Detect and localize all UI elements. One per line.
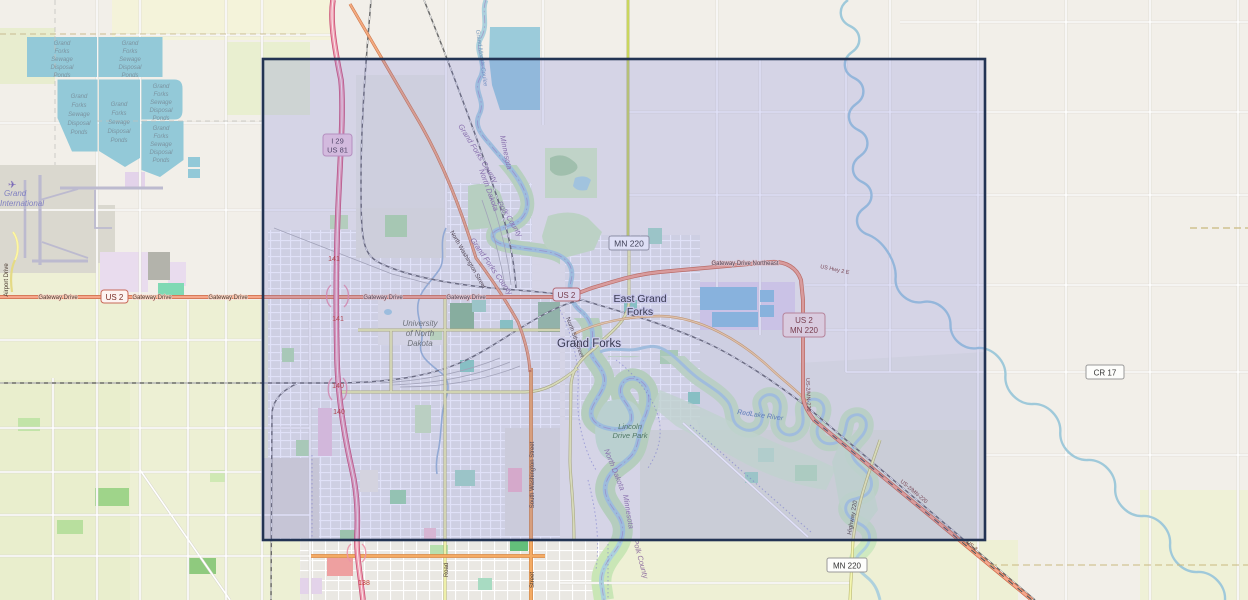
svg-text:Disposal: Disposal: [118, 65, 142, 71]
svg-text:Ponds: Ponds: [152, 158, 169, 164]
svg-text:Grand: Grand: [4, 189, 27, 198]
svg-text:Gateway Drive: Gateway Drive: [208, 295, 248, 301]
svg-text:Forks: Forks: [154, 92, 169, 98]
svg-text:Forks: Forks: [55, 49, 70, 55]
svg-text:Disposal: Disposal: [67, 121, 91, 127]
svg-text:US 2: US 2: [106, 293, 124, 302]
svg-text:Sewage: Sewage: [68, 112, 90, 118]
svg-text:Grand: Grand: [71, 94, 88, 100]
svg-text:Forks: Forks: [123, 49, 138, 55]
svg-text:Grand: Grand: [54, 41, 71, 47]
svg-text:Sewage: Sewage: [119, 57, 141, 63]
svg-text:Airport Drive: Airport Drive: [4, 263, 10, 297]
svg-text:Street: Street: [530, 572, 536, 588]
svg-text:MN 220: MN 220: [833, 562, 862, 571]
svg-text:Sewage: Sewage: [150, 100, 172, 106]
svg-text:Forks: Forks: [154, 134, 169, 140]
svg-text:Ponds: Ponds: [110, 138, 127, 144]
svg-text:Disposal: Disposal: [149, 108, 173, 114]
svg-text:Grand: Grand: [111, 102, 128, 108]
svg-text:Grand: Grand: [153, 126, 170, 132]
svg-text:Grand: Grand: [153, 84, 170, 90]
svg-text:Ponds: Ponds: [70, 130, 87, 136]
svg-text:International: International: [0, 199, 44, 208]
svg-text:Forks: Forks: [112, 111, 127, 117]
svg-text:Disposal: Disposal: [149, 150, 173, 156]
svg-text:Disposal: Disposal: [107, 129, 131, 135]
svg-text:Gateway Drive: Gateway Drive: [132, 295, 172, 301]
svg-text:Gateway Drive: Gateway Drive: [38, 295, 78, 301]
svg-text:Sewage: Sewage: [51, 57, 73, 63]
svg-text:Sewage: Sewage: [150, 142, 172, 148]
svg-text:Ponds: Ponds: [152, 116, 169, 122]
svg-text:Ponds: Ponds: [121, 73, 138, 79]
svg-text:CR 17: CR 17: [1094, 369, 1117, 378]
svg-text:Road: Road: [444, 563, 450, 577]
svg-text:Sewage: Sewage: [108, 120, 130, 126]
svg-text:Ponds: Ponds: [53, 73, 70, 79]
svg-text:138: 138: [358, 580, 370, 587]
svg-text:Grand: Grand: [122, 41, 139, 47]
svg-text:Disposal: Disposal: [50, 65, 74, 71]
svg-text:Forks: Forks: [72, 103, 87, 109]
